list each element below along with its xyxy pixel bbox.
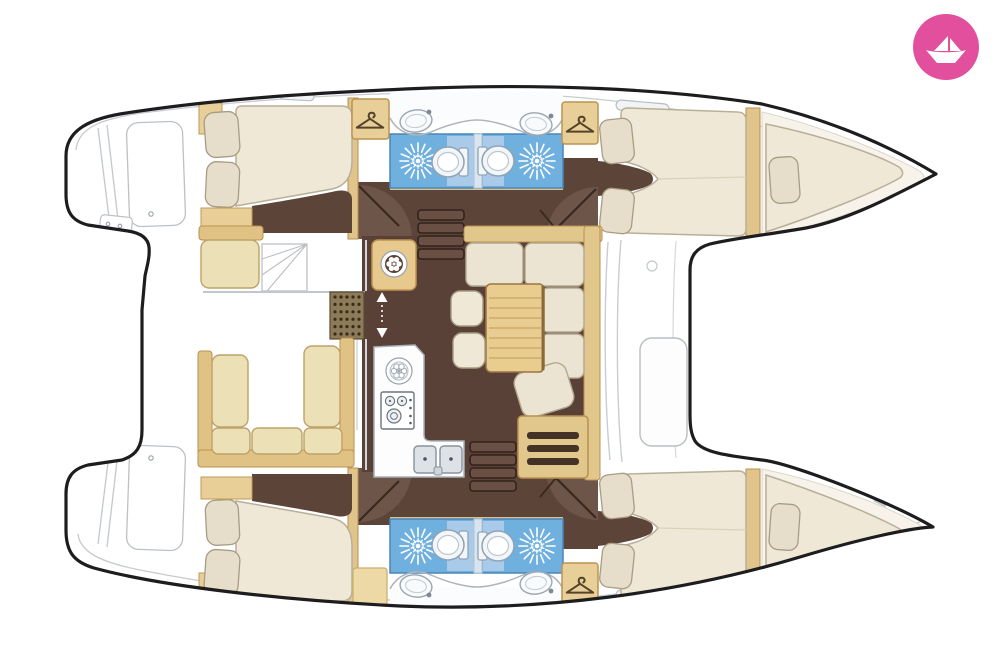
floorplan-canvas — [0, 0, 1000, 671]
fwd-cabin-pillow-bottom — [599, 472, 635, 519]
shower-icon-top — [400, 143, 436, 179]
dinette-cushion — [525, 243, 584, 286]
hall-floor-patch-bottom — [562, 521, 598, 549]
hull-interior-top — [199, 92, 924, 239]
cockpit-bench-cushion — [304, 346, 340, 427]
deck-hatch — [246, 598, 275, 609]
round-basin-icon — [386, 358, 412, 384]
dinette-cushion — [466, 243, 523, 286]
helm-console-top — [126, 121, 186, 227]
toilet-top — [432, 147, 468, 177]
cockpit-bench-cushion — [212, 355, 248, 427]
shower-icon-bottom — [400, 528, 436, 564]
round-sink-icon — [381, 251, 407, 277]
aft-cabin-pillow-top — [203, 111, 240, 158]
cleat-dot-bottom-a — [106, 446, 110, 450]
fwd-cabin-bulkhead-top — [746, 108, 760, 238]
hall-floor-patch-top — [562, 158, 598, 186]
shower-icon-bottom — [519, 528, 555, 564]
stool — [453, 333, 485, 368]
aft-cabin-shelf-bottom — [201, 477, 252, 499]
toilet-bottom — [478, 531, 514, 561]
fridge-slot — [527, 458, 579, 465]
dinette-cushion — [541, 288, 584, 332]
fwd-cabin-pillow-top — [599, 117, 635, 164]
foredeck-hatch — [640, 338, 687, 446]
fwd-cabin-pillow-top — [599, 187, 635, 234]
saloon — [362, 210, 602, 491]
shower-icon-top — [519, 143, 555, 179]
stove-icon — [381, 392, 414, 429]
helm-console-bottom — [126, 445, 186, 551]
locker-aft-bottom — [353, 568, 387, 606]
cockpit-bench-cushion — [304, 428, 342, 454]
fridge-slot — [527, 432, 579, 439]
cleat-plate-bottom — [99, 438, 132, 457]
hull-interior-bottom — [199, 468, 924, 615]
aft-cabin-pillow-top — [205, 161, 240, 208]
toilet-bottom — [432, 530, 468, 560]
dinette-backrest-top — [464, 226, 602, 242]
brand-logo — [913, 14, 979, 80]
catamaran-floorplan — [0, 0, 1000, 671]
entry-mat — [330, 292, 364, 339]
forepeak-pillow-top — [768, 156, 800, 204]
cockpit-corner-backrest — [199, 226, 263, 240]
toilet-top — [478, 146, 514, 176]
aft-cabin-pillow-bottom — [205, 499, 240, 546]
cockpit-corner-cushion — [201, 240, 259, 288]
cockpit-bench-cushion — [212, 428, 250, 454]
fridge-slot — [527, 445, 579, 452]
cockpit-backrest-left — [198, 351, 212, 461]
forepeak-pillow-bottom — [768, 503, 800, 551]
stool — [451, 291, 483, 326]
fwd-cabin-pillow-bottom — [599, 542, 635, 589]
fwd-cabin-bulkhead-bottom — [746, 469, 760, 599]
cleat-dot-bottom-b — [118, 444, 122, 448]
cockpit-bench-cushion — [252, 428, 302, 454]
